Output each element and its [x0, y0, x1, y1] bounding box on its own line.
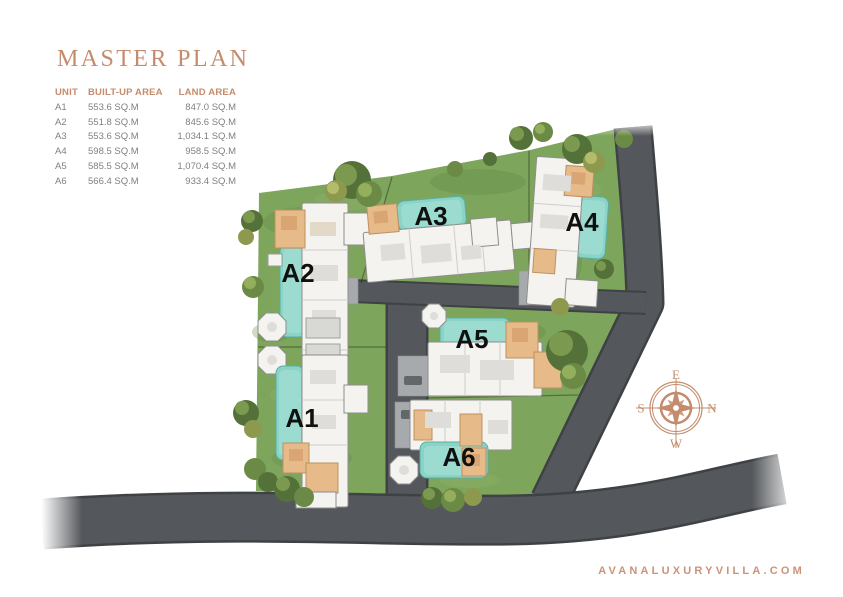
page-title: MASTER PLAN	[57, 46, 249, 73]
table-header-row: UNIT BUILT-UP AREA LAND AREA	[55, 86, 236, 101]
unit-label-a4: A4	[565, 207, 599, 237]
compass-north-label: N	[707, 401, 717, 416]
unit-label-a2: A2	[281, 258, 314, 288]
compass-west-label: W	[670, 436, 683, 451]
compass-east-label: E	[672, 367, 680, 382]
table-row: A3 553.6 SQ.M 1,034.1 SQ.M	[55, 130, 236, 145]
table-row: A6 566.4 SQ.M 933.4 SQ.M	[55, 175, 236, 190]
unit-label-a3: A3	[414, 201, 447, 231]
table-row: A5 585.5 SQ.M 1,070.4 SQ.M	[55, 160, 236, 175]
col-header-unit: UNIT	[55, 86, 88, 101]
unit-label-a5: A5	[455, 324, 488, 354]
table-row: A4 598.5 SQ.M 958.5 SQ.M	[55, 145, 236, 160]
unit-spec-table: UNIT BUILT-UP AREA LAND AREA A1 553.6 SQ…	[55, 86, 236, 190]
compass-south-label: S	[637, 401, 644, 416]
unit-label-a1: A1	[285, 403, 318, 433]
col-header-land-area: LAND AREA	[176, 86, 236, 101]
table-row: A2 551.8 SQ.M 845.6 SQ.M	[55, 116, 236, 131]
table-row: A1 553.6 SQ.M 847.0 SQ.M	[55, 101, 236, 116]
col-header-built-up-area: BUILT-UP AREA	[88, 86, 176, 101]
unit-label-a6: A6	[442, 442, 475, 472]
compass-rose: E N W S	[636, 367, 717, 451]
website-url: AVANALUXURYVILLA.COM	[598, 565, 805, 577]
